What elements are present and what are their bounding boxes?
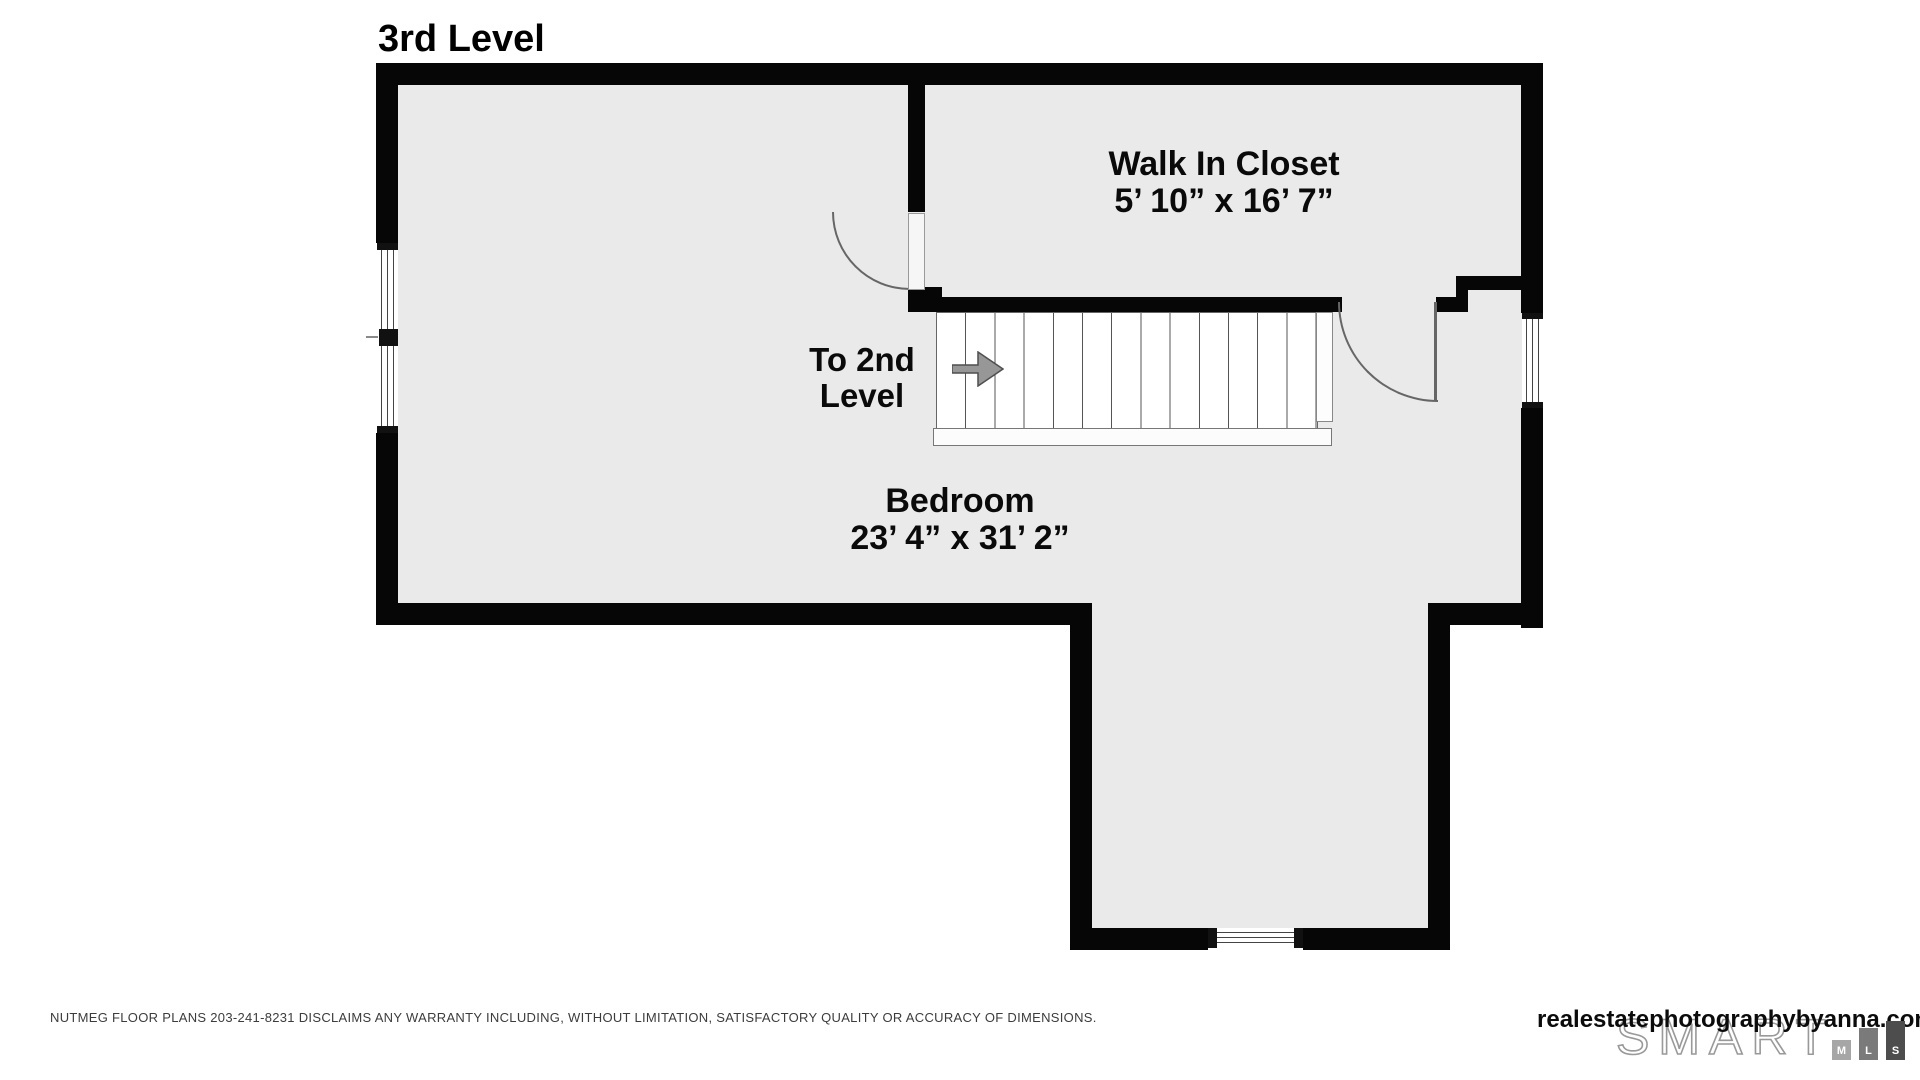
window-sill-line <box>366 336 378 338</box>
room-dimensions: 23’ 4” x 31’ 2” <box>794 520 1126 557</box>
right-wall-lower <box>1521 408 1543 628</box>
window-mullion <box>1532 313 1533 408</box>
mls-letter-l: L <box>1865 1045 1872 1057</box>
left-wall-lower <box>376 433 398 625</box>
right-wall-window <box>1522 313 1543 408</box>
window-mullion <box>1214 942 1297 943</box>
lower-room-bottom-wall-right <box>1303 928 1450 950</box>
window-cap <box>1294 928 1303 948</box>
closet-door-leaf <box>908 213 925 290</box>
window-cap <box>379 329 398 346</box>
top-wall <box>376 63 1543 85</box>
mls-bar-m: M <box>1832 1040 1851 1060</box>
lower-room-floor <box>1092 603 1428 930</box>
room-name: Bedroom <box>794 483 1126 520</box>
footer-disclaimer: NUTMEG FLOOR PLANS 203-241-8231 DISCLAIM… <box>50 1010 1097 1025</box>
mls-bar-l: L <box>1859 1028 1878 1060</box>
room-name: Walk In Closet <box>1058 146 1390 183</box>
stair-end-segment <box>1316 312 1333 422</box>
right-wall-upper <box>1521 63 1543 313</box>
window-cap <box>377 243 398 250</box>
stairs-direction-arrow-icon <box>952 351 1004 387</box>
room-dimensions: 5’ 10” x 16’ 7” <box>1058 183 1390 220</box>
floor-plan-page: 3rd Level <box>0 0 1920 1080</box>
window-cap <box>1522 402 1543 408</box>
closet-divider-wall <box>908 85 925 212</box>
lower-room-window <box>1208 928 1303 948</box>
mls-letter-s: S <box>1892 1045 1899 1057</box>
bottom-wall-right-segment <box>1450 603 1543 625</box>
window-cap <box>1522 313 1543 319</box>
window-mullion <box>1538 313 1539 408</box>
step-wall-connector <box>1456 276 1468 312</box>
page-title: 3rd Level <box>378 18 545 61</box>
window-cap <box>1208 928 1217 948</box>
window-mullion <box>1214 937 1297 938</box>
window-mullion <box>1526 313 1527 408</box>
left-wall-upper <box>376 63 398 243</box>
window-cap <box>377 426 398 433</box>
stair-landing-strip <box>933 428 1332 446</box>
left-wall-window <box>377 243 398 433</box>
lower-room-bottom-wall-left <box>1070 928 1208 950</box>
bedroom-label: Bedroom 23’ 4” x 31’ 2” <box>794 483 1126 557</box>
stair-top-wall <box>908 297 1342 312</box>
walk-in-closet-label: Walk In Closet 5’ 10” x 16’ 7” <box>1058 146 1390 220</box>
landing-door-leaf <box>1434 302 1437 400</box>
stair-label-line1: To 2nd <box>788 342 936 378</box>
window-mullion <box>1214 932 1297 933</box>
mls-letter-m: M <box>1837 1045 1846 1057</box>
to-2nd-level-label: To 2nd Level <box>788 342 936 414</box>
mls-bar-s: S <box>1886 1021 1905 1060</box>
lower-room-left-wall <box>1070 603 1092 950</box>
bottom-wall-main <box>376 603 1092 625</box>
stair-label-line2: Level <box>788 378 936 414</box>
lower-room-right-wall <box>1428 603 1450 950</box>
